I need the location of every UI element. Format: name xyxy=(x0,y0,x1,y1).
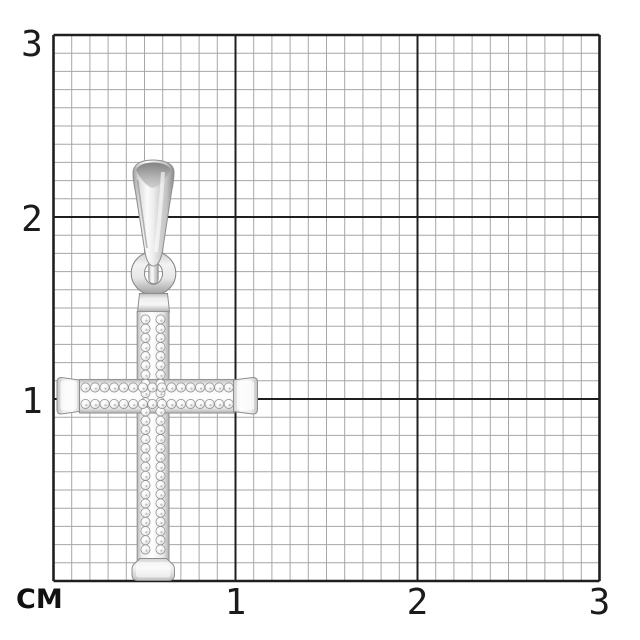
stone-facet xyxy=(145,421,147,423)
y-axis-tick-3: 3 xyxy=(21,24,43,65)
stone xyxy=(156,324,165,333)
stone-facet xyxy=(145,347,147,349)
stone xyxy=(148,383,157,392)
stone-facet xyxy=(145,540,147,542)
stone-facet xyxy=(145,356,147,358)
stone xyxy=(141,324,150,333)
stone-facet xyxy=(95,388,97,390)
stone-facet xyxy=(160,494,162,496)
stone xyxy=(156,471,165,480)
scene: 3 2 1 СМ 1 2 3 xyxy=(0,0,640,640)
stone xyxy=(156,352,165,361)
stone-facet xyxy=(133,388,135,390)
stone-facet xyxy=(145,458,147,460)
stone-facet xyxy=(219,404,221,406)
stone xyxy=(196,383,205,392)
stone xyxy=(176,383,185,392)
pendant-connector xyxy=(138,294,170,313)
stone xyxy=(156,536,165,545)
stone xyxy=(141,490,150,499)
cross-pendant-photo xyxy=(57,160,258,581)
stone xyxy=(129,399,138,408)
stone xyxy=(148,399,157,408)
stone-facet xyxy=(114,404,116,406)
stone-facet xyxy=(160,421,162,423)
stone xyxy=(156,343,165,352)
stone xyxy=(141,361,150,370)
stone-facet xyxy=(145,504,147,506)
stone-facet xyxy=(104,388,106,390)
stone-facet xyxy=(160,412,162,414)
stone-facet xyxy=(190,404,192,406)
stone xyxy=(141,425,150,434)
stone xyxy=(100,383,109,392)
stone-facet xyxy=(200,388,202,390)
stone xyxy=(141,545,150,554)
stone-facet xyxy=(143,388,145,390)
stone-facet xyxy=(209,404,211,406)
stone xyxy=(156,444,165,453)
stone-facet xyxy=(145,412,147,414)
stone xyxy=(156,315,165,324)
stone xyxy=(156,453,165,462)
stone-facet xyxy=(160,439,162,441)
stone xyxy=(196,399,205,408)
stone xyxy=(141,352,150,361)
stone xyxy=(156,508,165,517)
stone xyxy=(90,399,99,408)
stone xyxy=(156,499,165,508)
stone xyxy=(81,383,90,392)
stone xyxy=(138,399,147,408)
stone xyxy=(156,361,165,370)
stone-facet xyxy=(160,375,162,377)
x-axis-tick-3: 3 xyxy=(589,582,611,623)
stone-facet xyxy=(160,485,162,487)
stone xyxy=(156,425,165,434)
stone xyxy=(156,545,165,554)
stone xyxy=(205,399,214,408)
stone-facet xyxy=(145,485,147,487)
stone-facet xyxy=(133,404,135,406)
stone xyxy=(205,383,214,392)
stone-facet xyxy=(145,439,147,441)
stone xyxy=(156,333,165,342)
stone xyxy=(141,481,150,490)
axis-labels: 3 2 1 СМ 1 2 3 xyxy=(16,24,610,623)
stone-facet xyxy=(95,404,97,406)
stone-facet xyxy=(124,388,126,390)
stone-facet xyxy=(160,338,162,340)
stone xyxy=(141,435,150,444)
stone xyxy=(141,444,150,453)
bottom-cap-face xyxy=(136,562,171,578)
stone-facet xyxy=(181,388,183,390)
stone-facet xyxy=(209,388,211,390)
stone-facet xyxy=(145,522,147,524)
stone-facet xyxy=(219,388,221,390)
stone-facet xyxy=(124,404,126,406)
stone xyxy=(186,383,195,392)
stone-facet xyxy=(171,388,173,390)
stone-facet xyxy=(162,388,164,390)
stone xyxy=(167,383,176,392)
stone-facet xyxy=(160,522,162,524)
stone-facet xyxy=(160,531,162,533)
stone xyxy=(141,499,150,508)
stone xyxy=(186,399,195,408)
stone-facet xyxy=(190,388,192,390)
stone xyxy=(141,416,150,425)
stone xyxy=(100,399,109,408)
stone-facet xyxy=(152,388,154,390)
stone xyxy=(215,399,224,408)
stone-facet xyxy=(145,375,147,377)
stone-facet xyxy=(145,366,147,368)
stone-facet xyxy=(145,393,147,395)
stone-facet xyxy=(229,388,231,390)
stone xyxy=(156,370,165,379)
stone xyxy=(156,481,165,490)
stone-facet xyxy=(162,404,164,406)
stone-facet xyxy=(160,347,162,349)
stone-facet xyxy=(160,458,162,460)
stone xyxy=(141,462,150,471)
stone-facet xyxy=(160,393,162,395)
stone xyxy=(141,517,150,526)
stone-facet xyxy=(229,404,231,406)
stone-facet xyxy=(160,513,162,515)
stone-facet xyxy=(114,388,116,390)
stone xyxy=(138,383,147,392)
left-arm-cap-face xyxy=(61,381,78,410)
stone-facet xyxy=(200,404,202,406)
stone-facet xyxy=(145,550,147,552)
stone-facet xyxy=(160,356,162,358)
stone-facet xyxy=(145,476,147,478)
stone-facet xyxy=(171,404,173,406)
stone-facet xyxy=(160,504,162,506)
x-axis-tick-2: 2 xyxy=(407,582,429,623)
stone-facet xyxy=(85,404,87,406)
stone-facet xyxy=(145,329,147,331)
stone-facet xyxy=(145,531,147,533)
stone-facet xyxy=(160,476,162,478)
stone-facet xyxy=(145,338,147,340)
stone xyxy=(156,416,165,425)
stone-facet xyxy=(145,448,147,450)
stone xyxy=(215,383,224,392)
stone xyxy=(157,383,166,392)
stone xyxy=(157,399,166,408)
stone-facet xyxy=(152,404,154,406)
stone-facet xyxy=(160,467,162,469)
stone xyxy=(110,399,119,408)
stone-facet xyxy=(145,513,147,515)
stone xyxy=(156,435,165,444)
stone-facet xyxy=(160,320,162,322)
right-arm-cap-face xyxy=(237,381,254,410)
stone-facet xyxy=(143,404,145,406)
stone xyxy=(129,383,138,392)
y-axis-tick-2: 2 xyxy=(21,199,43,240)
stone-facet xyxy=(85,388,87,390)
stone-facet xyxy=(160,448,162,450)
stone-facet xyxy=(160,366,162,368)
stone xyxy=(141,471,150,480)
stone xyxy=(224,399,233,408)
stone-facet xyxy=(145,494,147,496)
stone-facet xyxy=(181,404,183,406)
stone xyxy=(224,383,233,392)
stone xyxy=(141,333,150,342)
product-measurement-image: 3 2 1 СМ 1 2 3 xyxy=(0,0,640,640)
stone-facet xyxy=(145,467,147,469)
stone xyxy=(176,399,185,408)
stone xyxy=(81,399,90,408)
stone xyxy=(156,527,165,536)
stone xyxy=(141,508,150,517)
stone xyxy=(156,490,165,499)
stone xyxy=(110,383,119,392)
y-axis-tick-1: 1 xyxy=(21,381,43,422)
stone xyxy=(167,399,176,408)
stone-facet xyxy=(160,430,162,432)
stone-facet xyxy=(160,550,162,552)
unit-label: СМ xyxy=(16,584,63,615)
stone xyxy=(141,343,150,352)
stone-facet xyxy=(104,404,106,406)
stone xyxy=(141,536,150,545)
stone-facet xyxy=(160,540,162,542)
stone xyxy=(141,315,150,324)
stone xyxy=(156,462,165,471)
stone xyxy=(119,383,128,392)
stone-facet xyxy=(145,430,147,432)
stone xyxy=(141,527,150,536)
stone xyxy=(156,517,165,526)
stone-facet xyxy=(145,320,147,322)
stone xyxy=(119,399,128,408)
grid-minor-lines xyxy=(54,35,600,581)
stone xyxy=(90,383,99,392)
stone xyxy=(141,370,150,379)
x-axis-tick-1: 1 xyxy=(225,582,247,623)
stone xyxy=(141,453,150,462)
stone-facet xyxy=(160,329,162,331)
